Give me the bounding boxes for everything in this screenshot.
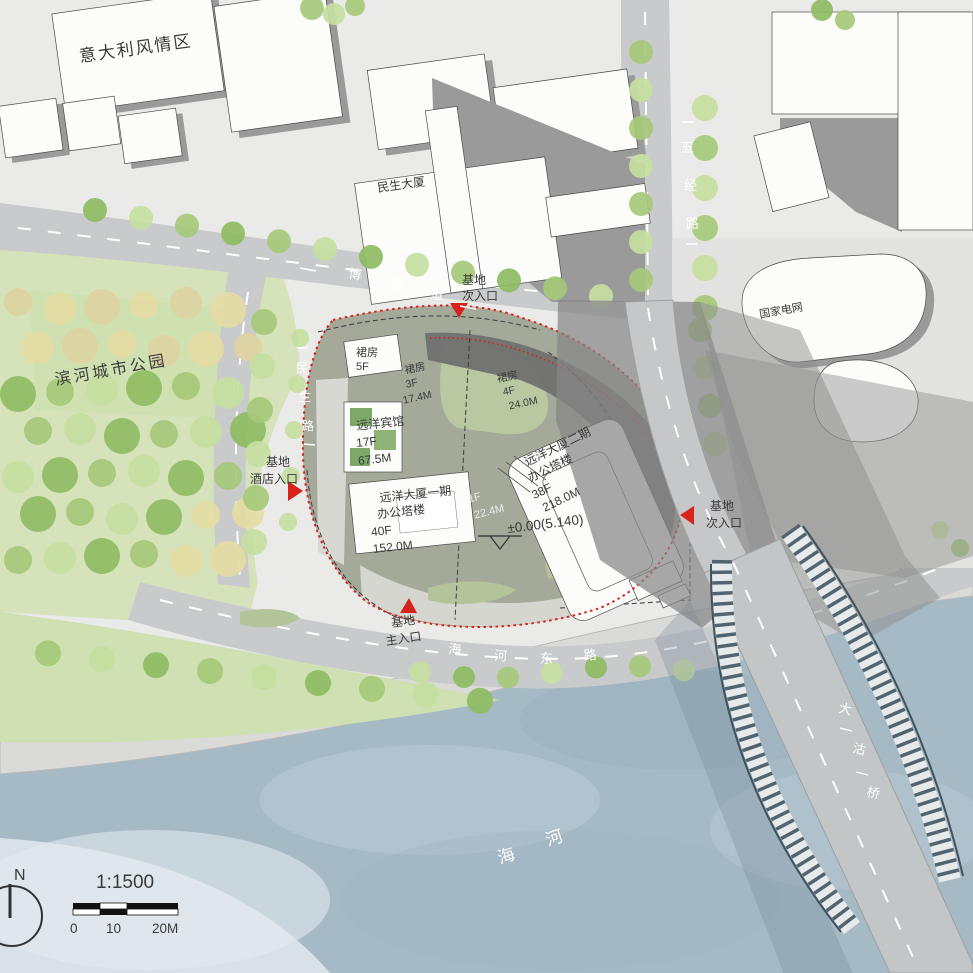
tree <box>214 462 242 490</box>
tree <box>4 546 32 574</box>
tree <box>251 664 277 690</box>
svg-text:裙房: 裙房 <box>356 346 378 359</box>
tree <box>497 666 519 688</box>
tree <box>170 287 202 319</box>
tree <box>629 78 653 102</box>
tree <box>64 413 96 445</box>
tree <box>323 3 345 25</box>
svg-text:生: 生 <box>299 390 311 404</box>
tree <box>128 455 160 487</box>
tree <box>305 670 331 696</box>
tree <box>197 658 223 684</box>
tree <box>172 372 200 400</box>
scale-ratio: 1:1500 <box>96 872 154 893</box>
tree <box>130 291 158 319</box>
north-label: N <box>14 867 29 884</box>
tree <box>453 666 475 688</box>
svg-text:路: 路 <box>686 216 699 231</box>
tree <box>89 646 115 672</box>
svg-text:路: 路 <box>583 647 597 663</box>
top-right-buildings <box>754 12 973 232</box>
tree <box>629 192 653 216</box>
svg-text:道: 道 <box>430 286 445 303</box>
tree <box>313 237 337 261</box>
tree <box>130 540 158 568</box>
scale-tick-10: 10 <box>106 921 121 936</box>
tree <box>20 496 56 532</box>
tree <box>629 40 653 64</box>
tree <box>405 253 429 277</box>
tree <box>0 376 36 412</box>
tree <box>285 421 303 439</box>
tree <box>84 538 120 574</box>
svg-text:4F: 4F <box>502 384 516 398</box>
svg-text:次入口: 次入口 <box>462 289 498 303</box>
tree <box>168 460 204 496</box>
svg-text:5F: 5F <box>356 361 369 373</box>
tree <box>543 276 567 300</box>
tree <box>146 499 182 535</box>
scale-tick-0: 0 <box>70 921 78 936</box>
svg-text:爱: 爱 <box>390 276 405 293</box>
tree <box>692 95 718 121</box>
tree <box>279 513 297 531</box>
svg-text:基地: 基地 <box>710 499 734 513</box>
tree <box>62 328 98 364</box>
tree <box>249 353 275 379</box>
scale-tick-20: 20M <box>152 921 178 936</box>
site-west-walk <box>316 378 348 565</box>
tree <box>35 640 61 666</box>
tree <box>129 206 153 230</box>
tree <box>629 154 653 178</box>
tree <box>24 417 52 445</box>
svg-text:博: 博 <box>348 266 363 283</box>
svg-text:40F: 40F <box>370 523 392 539</box>
svg-text:基地: 基地 <box>462 273 486 287</box>
tree <box>44 542 76 574</box>
tree <box>175 214 199 238</box>
svg-text:五: 五 <box>681 140 694 155</box>
svg-text:酒店入口: 酒店入口 <box>250 472 298 486</box>
tree <box>88 459 116 487</box>
tree <box>150 420 178 448</box>
tree <box>210 292 246 328</box>
tree <box>44 293 76 325</box>
tree <box>188 331 224 367</box>
tree <box>42 457 78 493</box>
tree <box>83 198 107 222</box>
tree <box>4 288 32 316</box>
svg-text:经: 经 <box>684 178 697 193</box>
tree <box>692 255 718 281</box>
tree <box>291 329 309 347</box>
tree <box>104 418 140 454</box>
tree <box>170 545 202 577</box>
tree <box>212 377 244 409</box>
tree <box>497 268 521 292</box>
svg-text:基地: 基地 <box>266 455 290 469</box>
tree <box>811 0 833 21</box>
tree <box>243 485 269 511</box>
tree <box>629 655 651 677</box>
svg-text:河: 河 <box>494 648 508 664</box>
tree <box>247 397 273 423</box>
tree <box>190 416 222 448</box>
tree <box>251 309 277 335</box>
tree <box>108 330 136 358</box>
svg-text:民: 民 <box>296 361 308 375</box>
tree <box>629 116 653 140</box>
tree <box>2 461 34 493</box>
tree <box>221 221 245 245</box>
tree <box>84 289 120 325</box>
tree <box>359 245 383 269</box>
tree <box>413 682 439 708</box>
tree <box>359 676 385 702</box>
svg-text:东: 东 <box>540 651 553 666</box>
svg-text:次入口: 次入口 <box>706 516 742 530</box>
site-plan-canvas: 意大利风情区 民生大厦 国家电网 滨河城市公园 五 经 路 博 爱 道 民 生 … <box>0 0 973 973</box>
tree <box>267 229 291 253</box>
tree <box>143 652 169 678</box>
tree <box>192 501 220 529</box>
tree <box>835 10 855 30</box>
site-plan: 意大利风情区 民生大厦 国家电网 滨河城市公园 五 经 路 博 爱 道 民 生 … <box>0 0 973 973</box>
tree <box>241 529 267 555</box>
tree <box>22 332 54 364</box>
svg-text:3F: 3F <box>405 376 419 390</box>
tree <box>409 661 431 683</box>
tree <box>629 268 653 292</box>
tree <box>629 230 653 254</box>
svg-text:17F: 17F <box>355 434 377 450</box>
tree <box>467 688 493 714</box>
svg-text:海: 海 <box>448 641 463 657</box>
tree <box>66 498 94 526</box>
tree <box>210 541 246 577</box>
tree <box>692 135 718 161</box>
svg-text:路: 路 <box>302 418 314 433</box>
tree <box>106 503 138 535</box>
